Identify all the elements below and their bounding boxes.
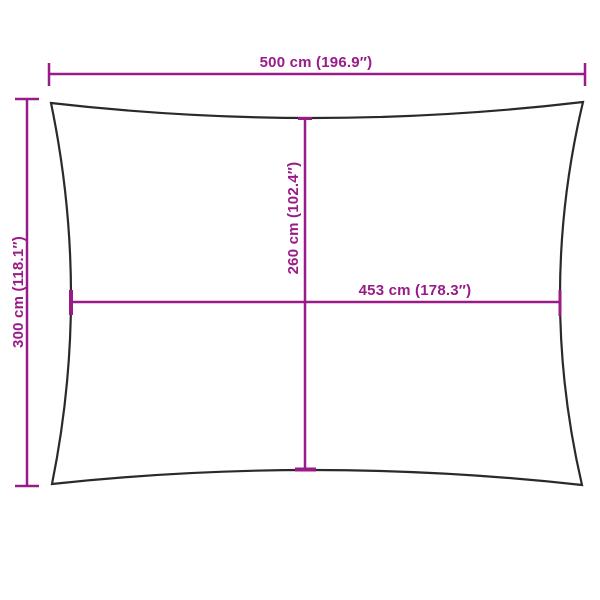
overall-height-label: 300 cm (118.1″) — [10, 236, 27, 348]
sail-outline — [51, 102, 583, 485]
dimension-overall-height: 300 cm (118.1″) — [10, 99, 39, 486]
dimension-inner-width: 453 cm (178.3″) — [71, 282, 560, 316]
inner-height-label: 260 cm (102.4″) — [285, 162, 302, 275]
sail-dimension-diagram: 500 cm (196.9″) 300 cm (118.1″) 260 cm (… — [0, 0, 600, 600]
dimension-inner-height: 260 cm (102.4″) — [285, 117, 316, 470]
diagram-svg: 500 cm (196.9″) 300 cm (118.1″) 260 cm (… — [0, 0, 600, 600]
dimension-overall-width: 500 cm (196.9″) — [49, 54, 585, 86]
inner-width-label: 453 cm (178.3″) — [359, 282, 472, 299]
overall-width-label: 500 cm (196.9″) — [260, 54, 373, 71]
